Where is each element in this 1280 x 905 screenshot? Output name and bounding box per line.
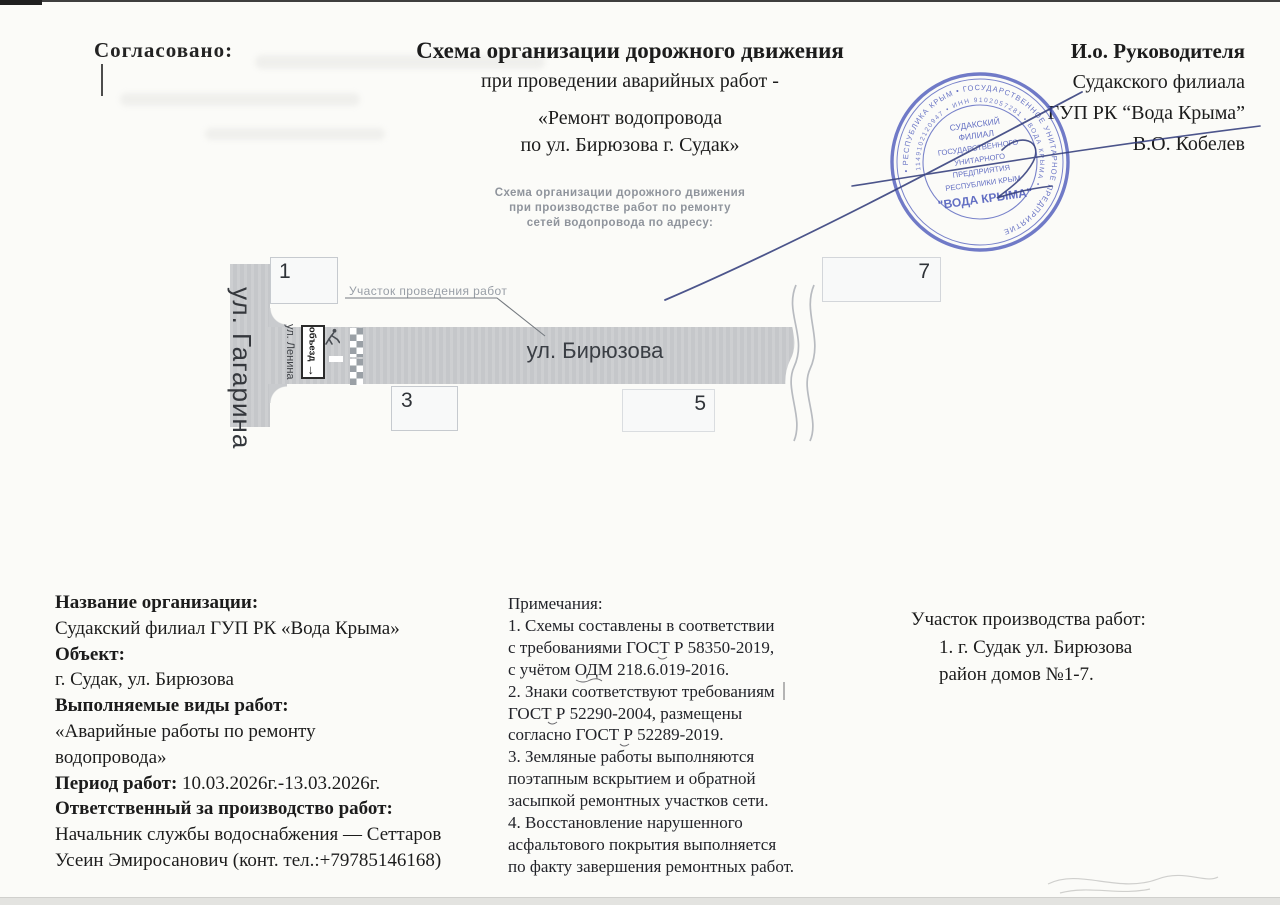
worksite-item-1: 1. г. Судак ул. Бирюзова — [911, 634, 1246, 662]
agreed-label: Согласовано: — [94, 38, 233, 63]
note-line: асфальтового покрытия выполняется — [508, 834, 853, 856]
notes-block: Примечания: 1. Схемы составлены в соотве… — [508, 593, 853, 878]
note-line: согласно ГОСТ Р 52289-2019. — [508, 724, 853, 746]
note-line: 4. Восстановление нарушенного — [508, 812, 853, 834]
notes-title: Примечания: — [508, 593, 853, 615]
work-zone-barrier-top — [350, 328, 363, 357]
document-page: Согласовано: Схема организации дорожного… — [0, 0, 1280, 905]
scan-edge-bottom — [0, 897, 1280, 905]
document-title: Схема организации дорожного движения при… — [360, 36, 900, 159]
worksite-block: Участок производства работ: 1. г. Судак … — [911, 606, 1246, 689]
note-line: 3. Земляные работы выполняются — [508, 746, 853, 768]
title-line-1: Схема организации дорожного движения — [360, 36, 900, 66]
scheme-header-line-2: при производстве работ по ремонту — [460, 201, 780, 216]
works-label: Выполняемые виды работ: — [55, 693, 500, 719]
scheme-header: Схема организации дорожного движения при… — [460, 186, 780, 231]
detour-sign-text: объезд → — [306, 327, 321, 377]
responsible-value-1: Начальник службы водоснабжения — Сеттаро… — [55, 822, 500, 848]
scheme-header-line-3: сетей водопровода по адресу: — [460, 216, 780, 231]
responsible-value-2: Усеин Эмиросанович (конт. тел.:+79785146… — [55, 848, 500, 874]
org-label: Название организации: — [55, 590, 500, 616]
note-line: с требованиями ГОСТ Р 58350-2019, — [508, 637, 853, 659]
works-value-1: «Аварийные работы по ремонту — [55, 719, 500, 745]
info-block: Название организации: Судакский филиал Г… — [55, 590, 500, 874]
note-line: поэтапным вскрытием и обратной — [508, 768, 853, 790]
street-label-biryuzova: ул. Бирюзова — [430, 338, 760, 364]
road-junction-fillet-bottom — [269, 384, 287, 403]
scan-ghost-smudge — [205, 128, 385, 140]
road-marking-dash — [329, 356, 343, 362]
worksite-item-2: район домов №1-7. — [911, 661, 1246, 689]
work-zone-barrier-bottom — [350, 359, 363, 385]
note-line: засыпкой ремонтных участков сети. — [508, 790, 853, 812]
object-value: г. Судак, ул. Бирюзова — [55, 667, 500, 693]
works-value-2: водопровода» — [55, 745, 500, 771]
title-line-4: по ул. Бирюзова г. Судак» — [360, 132, 900, 159]
work-area-label: Участок проведения работ — [349, 284, 507, 298]
object-label: Объект: — [55, 642, 500, 668]
scheme-header-line-1: Схема организации дорожного движения — [460, 186, 780, 201]
period-row: Период работ: 10.03.2026г.-13.03.2026г. — [55, 771, 500, 797]
roadworks-worker-icon — [324, 328, 340, 345]
building-box-1: 1 — [270, 257, 338, 304]
title-line-2: при проведении аварийных работ - — [360, 66, 900, 96]
detour-sign: объезд → — [301, 325, 325, 379]
scan-ghost-smudge — [120, 93, 360, 106]
detour-arrow-icon: → — [306, 364, 321, 377]
title-line-3: «Ремонт водопровода — [360, 105, 900, 132]
note-line: по факту завершения ремонтных работ. — [508, 856, 853, 878]
building-number: 1 — [279, 260, 291, 284]
period-label: Период работ: — [55, 773, 177, 794]
note-line: 2. Знаки соответствуют требованиям — [508, 681, 853, 703]
responsible-label: Ответственный за производство работ: — [55, 796, 500, 822]
pencil-scribble — [1048, 875, 1218, 884]
building-number: 3 — [401, 389, 413, 413]
street-label-gagarina: ул. Гагарина — [226, 287, 257, 449]
note-line: ГОСТ Р 52290-2004, размещены — [508, 703, 853, 725]
cursor-mark — [101, 64, 103, 96]
building-box-3: 3 — [391, 386, 458, 431]
scan-edge-top-left — [0, 0, 42, 5]
detour-sign-word: объезд — [307, 327, 318, 362]
pencil-scribble — [1060, 889, 1150, 893]
building-box-5: 5 — [622, 389, 715, 432]
period-value: 10.03.2026г.-13.03.2026г. — [177, 773, 380, 794]
road-break-mark — [758, 283, 848, 443]
building-number: 7 — [918, 260, 930, 284]
note-line: 1. Схемы составлены в соответствии — [508, 615, 853, 637]
scan-edge-top — [0, 0, 1280, 2]
street-label-lenina: ул. Ленина — [284, 324, 296, 380]
note-line: с учётом ОДМ 218.6.019-2016. — [508, 659, 853, 681]
building-number: 5 — [694, 392, 706, 416]
company-stamp: • РЕСПУБЛИКА КРЫМ • ГОСУДАРСТВЕННОЕ УНИТ… — [873, 55, 1088, 270]
org-value: Судакский филиал ГУП РК «Вода Крыма» — [55, 616, 500, 642]
worksite-title: Участок производства работ: — [911, 606, 1246, 634]
